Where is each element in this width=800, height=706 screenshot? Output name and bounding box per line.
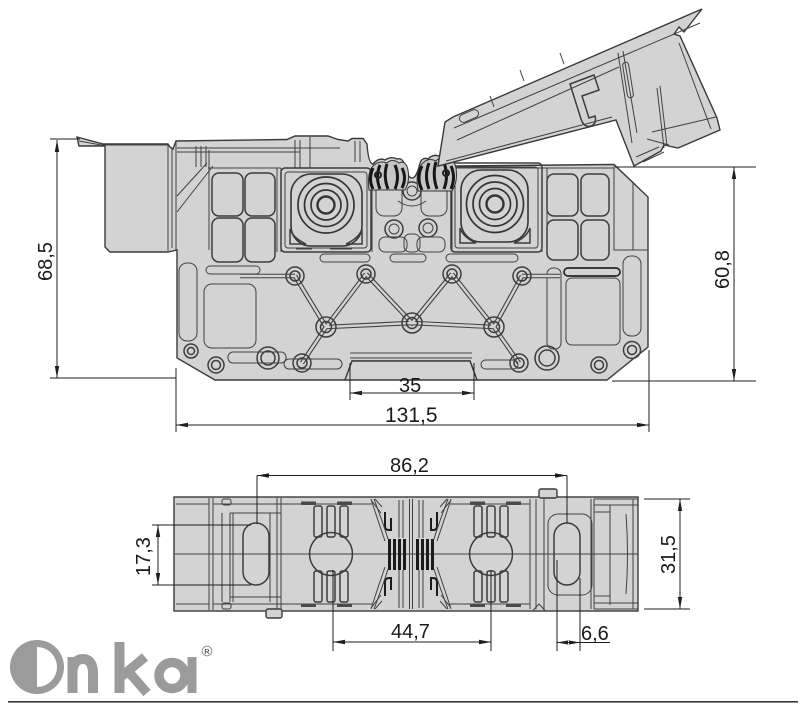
svg-text:60,8: 60,8	[712, 250, 734, 289]
svg-text:6,6: 6,6	[581, 623, 609, 645]
svg-text:R: R	[204, 647, 209, 656]
svg-text:44,7: 44,7	[391, 621, 430, 643]
svg-text:17,3: 17,3	[133, 537, 155, 576]
svg-text:86,2: 86,2	[390, 455, 429, 477]
svg-text:131,5: 131,5	[385, 404, 438, 427]
svg-text:68,5: 68,5	[35, 242, 57, 281]
svg-text:35: 35	[399, 375, 421, 397]
svg-text:31,5: 31,5	[658, 535, 680, 574]
